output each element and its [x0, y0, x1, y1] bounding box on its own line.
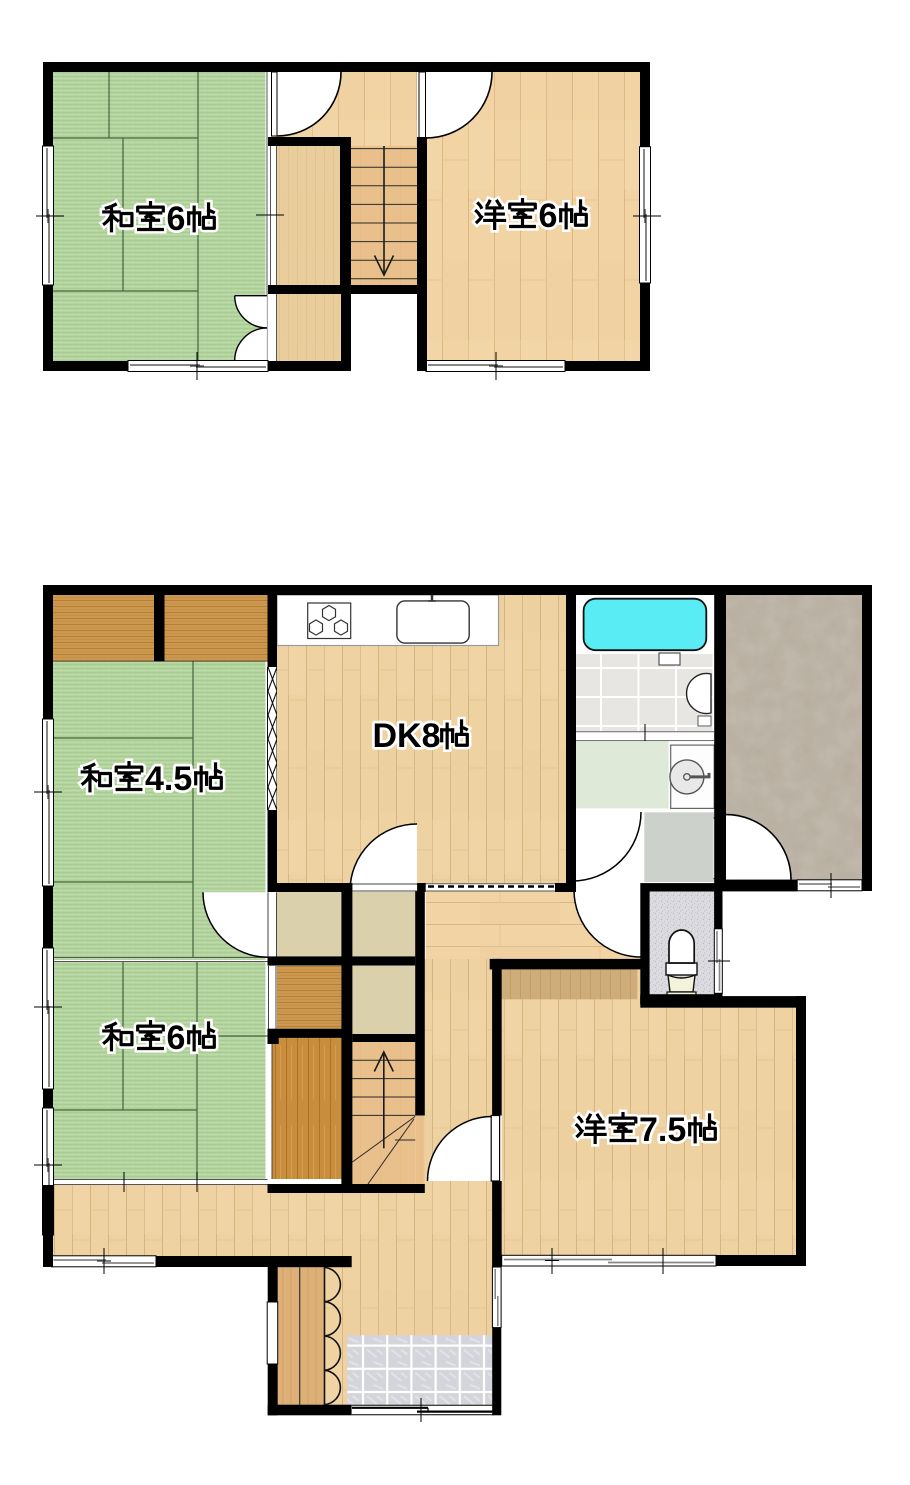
svg-text:6: 6 [539, 197, 558, 235]
svg-text:4.5: 4.5 [145, 760, 192, 798]
svg-text:6: 6 [167, 200, 186, 238]
svg-text:DK8: DK8 [373, 717, 441, 755]
svg-text:7.5: 7.5 [639, 1111, 686, 1149]
svg-text:6: 6 [167, 1019, 186, 1057]
